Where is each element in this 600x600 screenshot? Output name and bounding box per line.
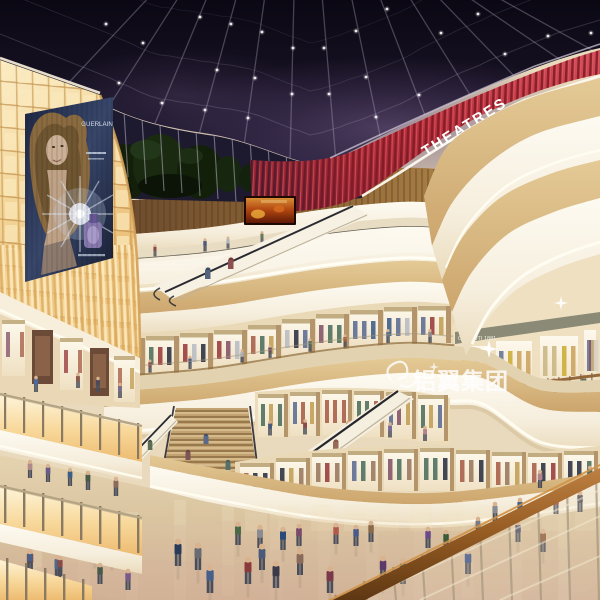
svg-text:铝翼集团: 铝翼集团 bbox=[413, 368, 509, 394]
